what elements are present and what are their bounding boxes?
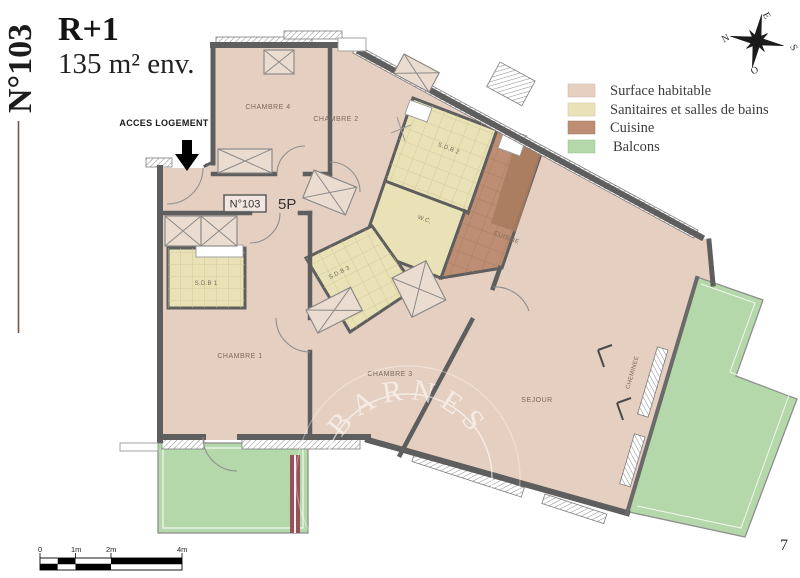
- compass-letter-e: E: [760, 11, 773, 22]
- window-sill: [338, 38, 366, 51]
- balcony-bottom-left: [158, 443, 308, 533]
- scale-label-4m: 4m: [177, 545, 187, 554]
- scale-bar-segments: [40, 558, 182, 570]
- unit-identification: N°103 5P: [224, 195, 296, 213]
- scale-label-2m: 2m: [106, 545, 116, 554]
- unit-number-text: N°103: [230, 199, 261, 211]
- legend-swatch-cuisine: [568, 121, 595, 134]
- legend-label-habitable: Surface habitable: [610, 83, 711, 99]
- entrance-arrow-icon: [175, 140, 199, 171]
- floor-label: R+1: [58, 11, 119, 48]
- legend-swatch-balcons: [568, 140, 595, 153]
- legend-label-sanitaires: Sanitaires et salles de bains: [610, 102, 769, 118]
- legend-swatch-sanitaires: [568, 103, 595, 116]
- compass-rose: N E S O: [720, 10, 799, 78]
- scale-label-0: 0: [38, 545, 42, 554]
- label-chambre1: CHAMBRE 1: [217, 353, 262, 360]
- label-sejour: SEJOUR: [521, 397, 552, 404]
- legend-swatch-habitable: [568, 84, 595, 97]
- area-label: 135 m² env.: [58, 48, 195, 80]
- scale-bar: 0 1m 2m 4m: [38, 545, 187, 570]
- window-sill: [120, 443, 158, 451]
- label-sdb1: S.D.B 1: [195, 281, 218, 287]
- legend-label-cuisine: Cuisine: [610, 120, 654, 136]
- shower-tray: [196, 245, 243, 257]
- compass-letter-o: O: [749, 64, 761, 77]
- label-chambre4: CHAMBRE 4: [245, 104, 290, 111]
- entrance-label: ACCES LOGEMENT: [119, 118, 208, 128]
- watermark-initial: B: [387, 455, 430, 526]
- legend: Surface habitable Sanitaires et salles d…: [568, 83, 769, 155]
- unit-number-vertical: N°103: [2, 24, 39, 113]
- floorplan-page: N°103 R+1 135 m² env. Surface habitable …: [0, 0, 800, 578]
- room-sdb1: [168, 245, 245, 308]
- compass-letter-n: N: [720, 32, 732, 45]
- scale-label-1m: 1m: [71, 545, 81, 554]
- label-chambre2: CHAMBRE 2: [313, 116, 358, 123]
- legend-label-balcons: Balcons: [613, 139, 660, 155]
- page-number: 7: [780, 537, 788, 554]
- compass-letter-s: S: [787, 43, 799, 53]
- unit-rooms-text: 5P: [278, 196, 296, 213]
